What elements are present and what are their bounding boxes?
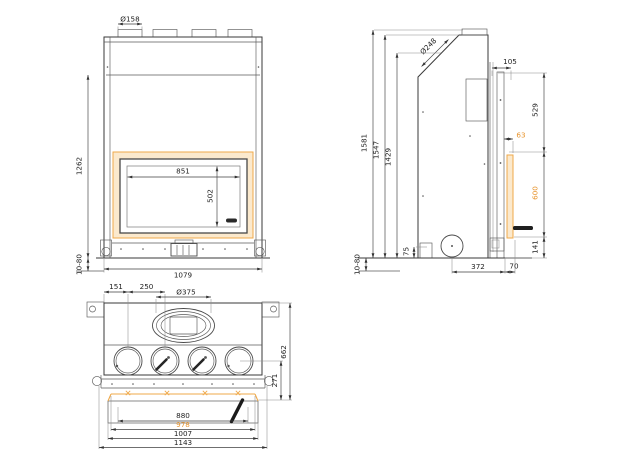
dim-side-glass-height-label: 600	[531, 186, 540, 200]
dim-side-foot-height: 75	[402, 247, 428, 258]
dim-front-leveling-label: 10-80	[75, 254, 84, 275]
dim-side-front-depth-label: 70	[509, 262, 519, 271]
side-front-assembly	[490, 62, 533, 258]
front-top-air-stubs	[118, 30, 252, 38]
dim-side-inlet-depth-label: 372	[471, 262, 485, 271]
bottom-damper-lever-right	[194, 360, 204, 370]
dim-side-h2-label: 1547	[372, 141, 381, 159]
bottom-air-ports	[114, 347, 253, 375]
bottom-body-outline	[104, 303, 262, 375]
dim-side-top-depth: 105	[492, 57, 517, 80]
dim-front-glass-height-label: 502	[206, 189, 215, 203]
dim-side-height2: 1547	[372, 35, 460, 258]
dim-bottom-opening-width-label: 880	[176, 411, 190, 420]
dim-bottom-edge-to-port: 151	[104, 282, 128, 347]
dim-front-height-label: 1262	[75, 157, 84, 175]
dim-bottom-front-depth-label: 271	[270, 374, 279, 388]
side-view: Ø248 1581 1547 1429 105 529	[353, 29, 548, 275]
side-door-glass	[507, 155, 513, 238]
dim-bottom-flue-oval: Ø375	[156, 288, 211, 314]
dim-side-inlet-depth: 372	[452, 257, 505, 274]
dim-side-glass-height: 600	[531, 152, 545, 237]
dim-side-base-height-label: 141	[531, 240, 540, 254]
dim-side-glass-offset-label: 63	[516, 131, 525, 140]
side-foot	[420, 243, 432, 258]
dim-side-h1-label: 1581	[360, 134, 369, 152]
front-air-inlet-box	[171, 244, 197, 257]
dim-bottom-total-depth-label: 662	[279, 345, 288, 359]
dim-side-leveling: 10-80	[353, 254, 367, 275]
dim-front-width-label: 1079	[174, 271, 193, 280]
bottom-front-band	[92, 375, 273, 388]
dim-bottom-total-width-label: 1143	[174, 438, 192, 447]
dim-side-glass-offset: 63	[504, 131, 526, 154]
dim-side-top-depth-label: 105	[503, 57, 517, 66]
technical-drawing: Ø158 1262 851 502 1079 10-80	[0, 0, 624, 460]
dim-side-height3: 1429	[384, 53, 442, 258]
bottom-flue-oval	[153, 309, 215, 343]
dim-side-leveling-label: 10-80	[353, 254, 362, 275]
dim-front-flue-label: Ø158	[120, 15, 140, 24]
front-view: Ø158 1262 851 502 1079 10-80	[75, 15, 271, 280]
front-base	[76, 240, 270, 271]
dim-side-foot-height-label: 75	[402, 247, 411, 256]
front-door	[113, 152, 253, 238]
side-panel	[466, 79, 487, 121]
side-base	[358, 235, 532, 271]
dim-front-frame-height: 1262	[75, 75, 89, 258]
dim-side-upper-height-label: 529	[531, 103, 540, 117]
dim-side-h3-label: 1429	[384, 147, 393, 166]
dim-side-upper-height: 529	[498, 73, 547, 152]
dim-front-leveling: 10-80	[75, 254, 89, 275]
side-door-handle	[513, 226, 533, 230]
dim-side-base-height: 141	[505, 237, 547, 258]
dim-front-flue-collar: Ø158	[118, 15, 142, 30]
dim-side-front-depth: 70	[505, 240, 519, 274]
front-door-handle	[226, 219, 237, 223]
bottom-view: 151 250 Ø375 662 271 880	[87, 282, 292, 449]
bottom-damper-lever-left	[157, 360, 167, 370]
dim-bottom-port-spacing-label: 250	[140, 282, 154, 291]
dim-bottom-flue-oval-label: Ø375	[176, 288, 195, 297]
side-body-outline	[418, 29, 488, 258]
bottom-left-wheel	[92, 376, 101, 385]
drawing-canvas: Ø158 1262 851 502 1079 10-80	[0, 0, 624, 460]
side-top-stub	[462, 29, 487, 35]
dim-front-body-width: 1079	[104, 259, 262, 280]
bottom-flue-duct	[170, 317, 197, 334]
dim-front-glass-width-label: 851	[176, 167, 190, 176]
dim-bottom-glass-width-label: 978	[176, 420, 190, 429]
dim-bottom-edge-port-label: 151	[109, 282, 123, 291]
dim-bottom-frame-width-label: 1007	[174, 429, 192, 438]
